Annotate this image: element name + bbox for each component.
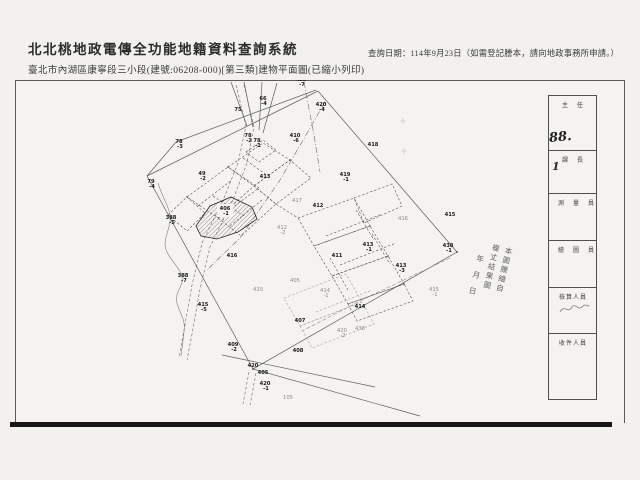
- document-title: 臺北市內湖區康寧段三小段(建號:06208-000)[第三類]建物平面圖(已縮小…: [28, 62, 365, 76]
- svg-text:-3: -3: [177, 144, 183, 150]
- svg-text:-1: -1: [223, 211, 229, 217]
- svg-text:418: 418: [368, 142, 379, 148]
- svg-text:413: 413: [260, 174, 271, 180]
- svg-text:-1: -1: [323, 293, 328, 299]
- svg-text:408: 408: [293, 348, 304, 354]
- svg-text:420: 420: [248, 363, 259, 369]
- svg-text:407: 407: [295, 318, 306, 324]
- building-cluster-c: [284, 274, 374, 348]
- svg-text:412: 412: [313, 203, 324, 209]
- svg-text:-2: -2: [231, 347, 237, 353]
- svg-text:-2: -2: [340, 333, 345, 339]
- system-title: 北北桃地政電傳全功能地籍資料查詢系統: [28, 38, 298, 58]
- svg-text:438: 438: [355, 326, 365, 332]
- parcel-number-labels: 422-766-475420-4410-641878-378-278-179-4…: [147, 80, 455, 401]
- svg-text:75: 75: [234, 107, 242, 113]
- svg-text:414: 414: [355, 304, 366, 310]
- svg-text:-2: -2: [280, 230, 285, 236]
- strip-row-receiver: 收件人員: [549, 334, 596, 399]
- svg-text:105: 105: [283, 395, 293, 401]
- query-date-note: 查詢日期：114年9月23日（如需登記謄本，請向地政事務所申請。）: [368, 47, 619, 59]
- svg-text:405: 405: [258, 370, 269, 376]
- cadastral-map: 422-766-475420-4410-641878-378-278-179-4…: [15, 80, 625, 427]
- svg-text:-4: -4: [319, 107, 325, 113]
- scanned-cadastral-printout: { "header": { "system_title": "北北桃地政電傳全功…: [0, 0, 640, 480]
- register-cross-marks: [400, 118, 407, 154]
- svg-text:-2: -2: [200, 176, 206, 182]
- svg-text:-1: -1: [343, 177, 349, 183]
- svg-text:-7: -7: [181, 278, 187, 284]
- svg-text:-7: -7: [299, 82, 305, 88]
- scan-bottom-bar: [10, 422, 612, 427]
- svg-text:417: 417: [292, 198, 302, 204]
- svg-text:-1: -1: [366, 247, 372, 253]
- svg-text:416: 416: [398, 216, 408, 222]
- strip-row-surveyor: 測量員: [549, 194, 596, 241]
- strip-row-draftsman: 繪圖員: [549, 241, 596, 288]
- svg-text:-3: -3: [399, 268, 405, 274]
- svg-text:416: 416: [227, 253, 238, 259]
- svg-text:-1: -1: [255, 143, 261, 149]
- svg-text:420: 420: [253, 287, 263, 293]
- svg-text:405: 405: [290, 278, 300, 284]
- parcel-boundaries: [147, 82, 457, 416]
- svg-text:-1: -1: [446, 248, 452, 254]
- svg-text:-6: -6: [293, 138, 299, 144]
- svg-text:-1: -1: [263, 386, 269, 392]
- signature-scribble: [556, 298, 592, 320]
- svg-text:411: 411: [332, 253, 343, 259]
- svg-text:415: 415: [445, 212, 456, 218]
- building-cluster-b: [276, 184, 413, 321]
- svg-text:-4: -4: [149, 184, 155, 190]
- svg-text:-4: -4: [261, 101, 267, 107]
- handwritten-mark: 1: [552, 160, 560, 173]
- svg-text:-5: -5: [201, 307, 207, 313]
- svg-text:-5: -5: [169, 220, 175, 226]
- svg-text:-2: -2: [246, 138, 252, 144]
- handwritten-number: 88.: [548, 129, 572, 146]
- svg-text:-1: -1: [432, 292, 437, 298]
- subject-building: [196, 197, 257, 239]
